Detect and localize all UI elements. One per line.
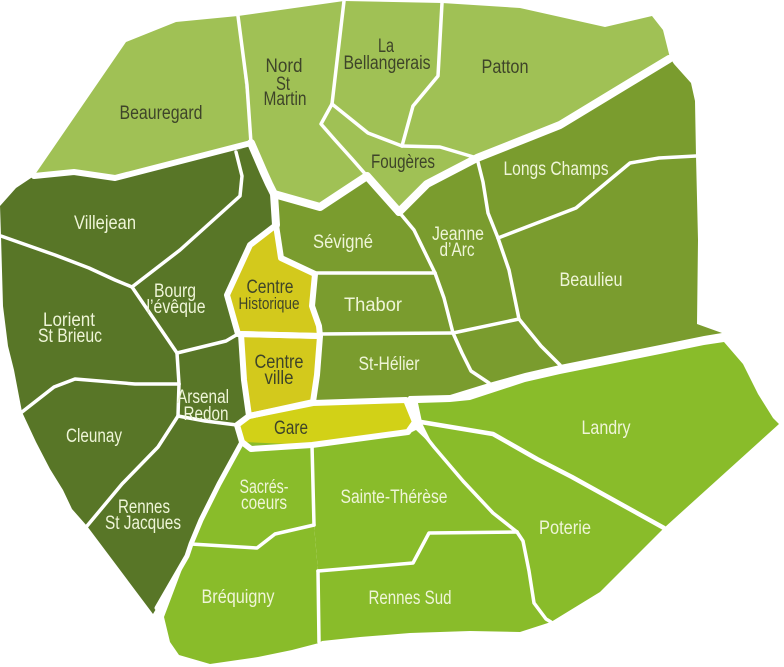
svg-text:Landry: Landry [582, 418, 631, 439]
svg-text:Longs Champs: Longs Champs [504, 159, 609, 180]
svg-text:Villejean: Villejean [74, 213, 136, 234]
svg-text:Historique: Historique [239, 295, 300, 313]
svg-text:Beauregard: Beauregard [120, 103, 203, 124]
svg-text:Cleunay: Cleunay [66, 426, 122, 447]
svg-text:Bellangerais: Bellangerais [344, 53, 431, 74]
svg-text:Beaulieu: Beaulieu [560, 270, 623, 291]
svg-text:d’Arc: d’Arc [440, 240, 475, 261]
svg-text:St-Hélier: St-Hélier [359, 354, 421, 375]
svg-text:Gare: Gare [274, 418, 308, 439]
svg-text:Sainte-Thérèse: Sainte-Thérèse [341, 487, 448, 508]
svg-text:St Jacques: St Jacques [105, 513, 181, 534]
svg-text:Bréquigny: Bréquigny [202, 587, 275, 608]
svg-text:Poterie: Poterie [539, 518, 591, 539]
svg-text:Sévigné: Sévigné [313, 232, 373, 253]
svg-text:Martin: Martin [264, 89, 307, 110]
svg-text:Rennes Sud: Rennes Sud [369, 588, 452, 609]
svg-text:Fougères: Fougères [371, 152, 435, 173]
svg-text:Thabor: Thabor [344, 295, 403, 316]
svg-text:Redon: Redon [184, 404, 229, 425]
svg-text:ville: ville [265, 368, 294, 389]
svg-text:Patton: Patton [482, 57, 529, 78]
svg-text:coeurs: coeurs [241, 493, 287, 514]
svg-text:l’évêque: l’évêque [147, 297, 206, 318]
svg-text:St Brieuc: St Brieuc [38, 326, 102, 347]
